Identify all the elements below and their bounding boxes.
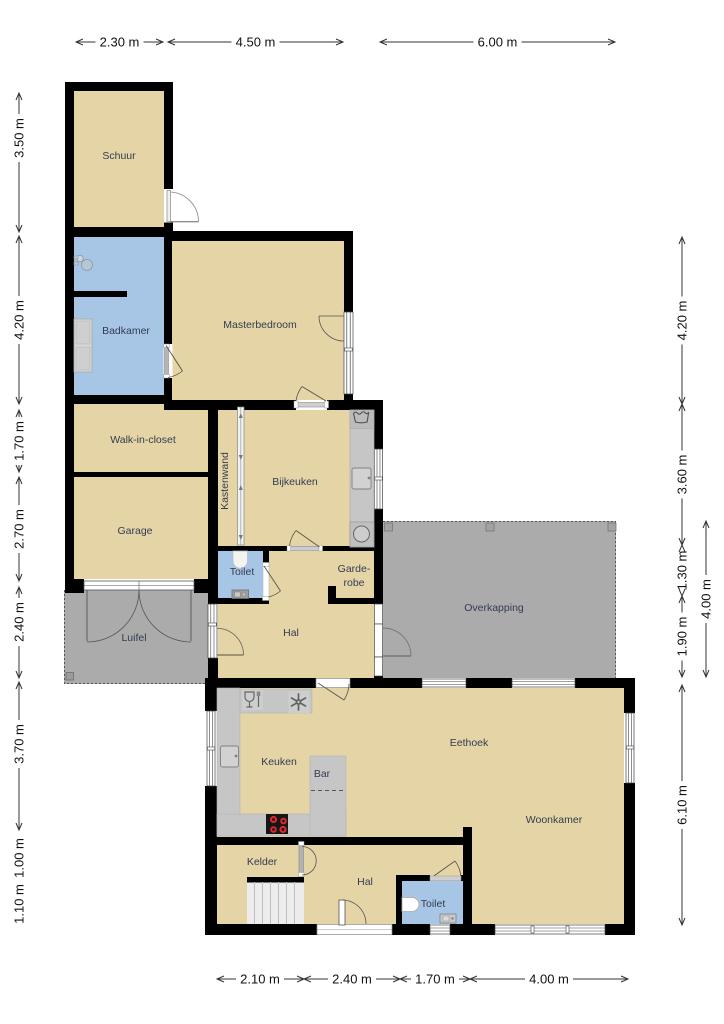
svg-text:1.90 m: 1.90 m [675,617,690,657]
svg-text:2.70 m: 2.70 m [12,509,27,549]
svg-text:Garage: Garage [117,525,152,537]
svg-text:Walk-in-closet: Walk-in-closet [110,434,176,446]
svg-text:4.00 m: 4.00 m [699,579,714,619]
svg-text:1.70 m: 1.70 m [415,972,455,987]
svg-text:4.50 m: 4.50 m [236,35,276,50]
svg-text:Luifel: Luifel [121,632,146,644]
svg-text:Schuur: Schuur [102,150,136,162]
svg-text:Toilet: Toilet [421,898,446,910]
svg-text:Hal: Hal [357,876,373,888]
svg-text:2.40 m: 2.40 m [332,972,372,987]
svg-text:2.10 m: 2.10 m [240,972,280,987]
svg-text:Keuken: Keuken [261,756,297,768]
svg-text:1.10 m: 1.10 m [12,884,27,924]
svg-text:Woonkamer: Woonkamer [526,814,583,826]
svg-text:4.00 m: 4.00 m [529,972,569,987]
svg-text:6.10 m: 6.10 m [675,785,690,825]
svg-text:Badkamer: Badkamer [102,325,150,337]
svg-text:Masterbedroom: Masterbedroom [223,319,297,331]
svg-text:Overkapping: Overkapping [464,602,524,614]
svg-text:3.60 m: 3.60 m [675,455,690,495]
svg-text:4.20 m: 4.20 m [675,301,690,341]
svg-text:Eethoek: Eethoek [450,737,489,749]
svg-text:1.30 m: 1.30 m [675,551,690,591]
svg-text:Hal: Hal [283,627,299,639]
svg-text:2.30 m: 2.30 m [100,35,140,50]
svg-text:Kastenwand: Kastenwand [219,452,231,510]
svg-text:6.00 m: 6.00 m [478,35,518,50]
svg-text:3.50 m: 3.50 m [12,118,27,158]
svg-text:Bijkeuken: Bijkeuken [272,476,318,488]
svg-text:Kelder: Kelder [247,856,278,868]
svg-text:2.40 m: 2.40 m [12,602,27,642]
svg-text:robe: robe [343,577,364,589]
svg-text:4.20 m: 4.20 m [12,300,27,340]
svg-text:1.00 m: 1.00 m [12,838,27,878]
svg-text:Bar: Bar [314,768,331,780]
svg-text:Toilet: Toilet [230,566,255,578]
svg-text:1.70 m: 1.70 m [12,421,27,461]
svg-text:3.70 m: 3.70 m [12,724,27,764]
svg-text:Garde-: Garde- [338,563,371,575]
